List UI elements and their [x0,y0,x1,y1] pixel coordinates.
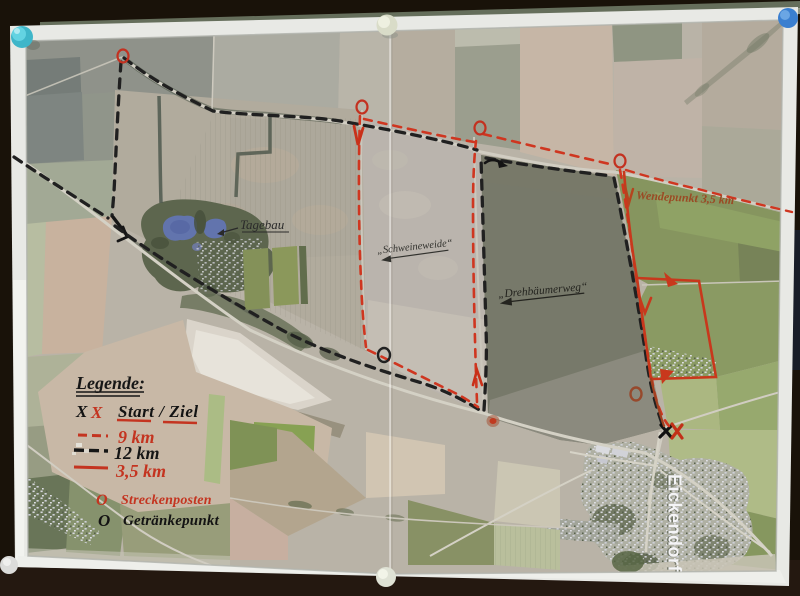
svg-text:O: O [96,492,108,509]
svg-text:X: X [75,402,88,421]
svg-text:Legende:: Legende: [75,373,145,393]
svg-text:12 km: 12 km [114,443,160,463]
svg-text:Tagebau: Tagebau [240,217,285,232]
svg-text:X: X [90,403,103,422]
svg-text:Start / Ziel: Start / Ziel [118,402,199,421]
svg-text:Getränkepunkt: Getränkepunkt [123,513,220,529]
svg-text:Streckenposten: Streckenposten [121,493,212,508]
svg-text:Eickendorf: Eickendorf [665,474,685,573]
svg-text:3,5 km: 3,5 km [115,461,166,481]
svg-text:O: O [98,511,110,530]
